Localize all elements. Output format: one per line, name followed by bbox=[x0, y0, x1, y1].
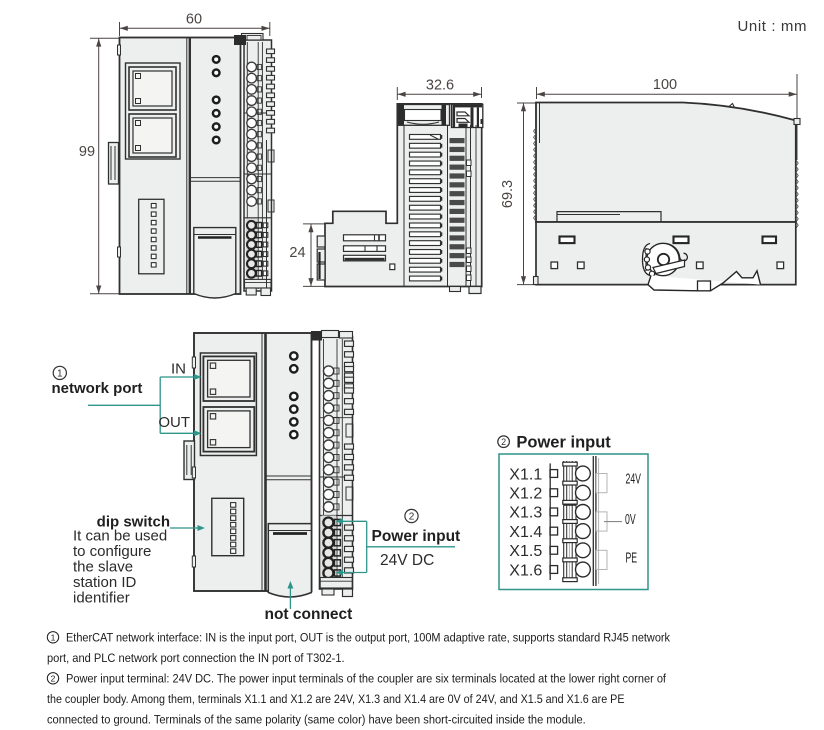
svg-text:24V DC: 24V DC bbox=[380, 552, 434, 569]
svg-text:X1.6: X1.6 bbox=[509, 562, 542, 579]
svg-text:24: 24 bbox=[289, 245, 305, 261]
svg-text:X1.1: X1.1 bbox=[509, 466, 542, 483]
svg-text:connected to ground. Terminals: connected to ground. Terminals of the sa… bbox=[47, 712, 586, 726]
svg-text:X1.4: X1.4 bbox=[509, 524, 542, 541]
svg-text:69.3: 69.3 bbox=[500, 180, 516, 208]
svg-text:network port: network port bbox=[52, 380, 143, 397]
svg-text:2: 2 bbox=[51, 673, 56, 683]
svg-text:Power input: Power input bbox=[516, 434, 611, 452]
svg-text:2: 2 bbox=[409, 512, 415, 523]
svg-text:Power input terminal: 24V DC.: Power input terminal: 24V DC. The power … bbox=[66, 672, 667, 686]
svg-text:X1.3: X1.3 bbox=[509, 505, 542, 522]
svg-text:not connect: not connect bbox=[265, 606, 353, 623]
svg-text:24V: 24V bbox=[626, 470, 642, 487]
svg-text:32.6: 32.6 bbox=[426, 78, 454, 94]
svg-text:1: 1 bbox=[57, 369, 63, 380]
svg-text:the slave: the slave bbox=[73, 559, 133, 576]
svg-text:IN: IN bbox=[171, 361, 186, 378]
svg-text:OUT: OUT bbox=[158, 414, 190, 431]
svg-text:Power input: Power input bbox=[372, 528, 461, 545]
svg-text:1: 1 bbox=[51, 632, 56, 642]
svg-text:100: 100 bbox=[653, 77, 677, 93]
svg-text:identifier: identifier bbox=[73, 590, 130, 607]
svg-text:port, and PLC network port con: port, and PLC network port connection th… bbox=[47, 651, 345, 665]
svg-text:Unit : mm: Unit : mm bbox=[738, 18, 808, 35]
svg-text:station ID: station ID bbox=[73, 574, 137, 591]
svg-text:It can be used: It can be used bbox=[73, 528, 167, 545]
svg-text:0V: 0V bbox=[625, 511, 636, 528]
svg-text:X1.5: X1.5 bbox=[509, 543, 542, 560]
svg-text:to configure: to configure bbox=[73, 543, 151, 560]
svg-text:EtherCAT network interface: IN: EtherCAT network interface: IN is the in… bbox=[66, 631, 671, 645]
svg-text:the coupler body. Among them,: the coupler body. Among them, terminals … bbox=[47, 692, 625, 706]
svg-text:60: 60 bbox=[186, 12, 202, 28]
svg-text:PE: PE bbox=[626, 549, 638, 566]
svg-text:2: 2 bbox=[501, 437, 506, 447]
svg-text:99: 99 bbox=[79, 144, 95, 160]
svg-text:X1.2: X1.2 bbox=[509, 486, 542, 503]
